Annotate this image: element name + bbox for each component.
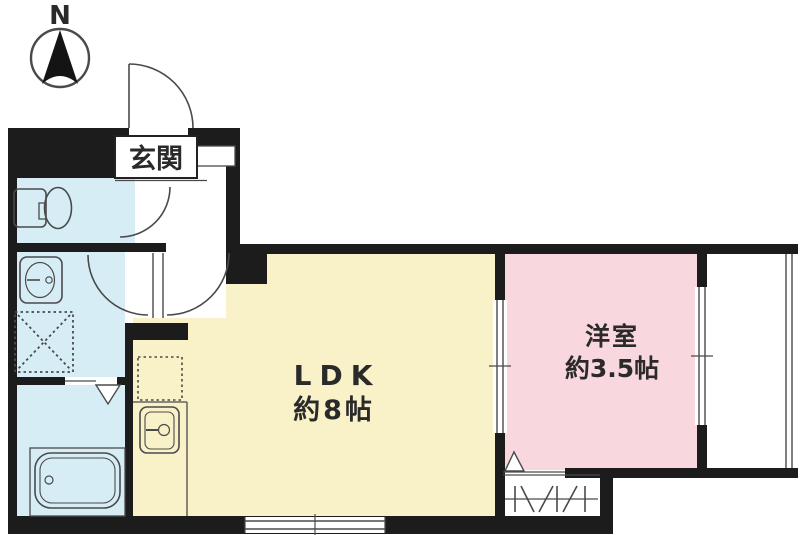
entrance-label: 玄関 (129, 143, 183, 175)
western-room-size-label: 約3.5帖 (565, 354, 659, 383)
entrance-door (129, 64, 193, 128)
hallway-floor (133, 253, 226, 318)
wall-top-main (226, 244, 798, 254)
wall-kitchen-left (125, 323, 133, 516)
north-needle-icon (42, 30, 78, 84)
compass (31, 29, 89, 87)
bathroom-floor (17, 385, 125, 516)
balcony-railing-icon (786, 254, 792, 468)
toilet-room-floor (17, 178, 135, 243)
wall-western-left-top (495, 244, 505, 302)
wall-mass-above-toilet (8, 148, 115, 178)
entrance-door-arc-icon (129, 64, 193, 128)
wall-balcony-bottom (697, 468, 798, 478)
ldk-label: LDK (294, 359, 381, 392)
wall-toilet-bottom (8, 243, 166, 252)
wall-bath-top-right (117, 377, 133, 385)
balcony-floor (707, 254, 786, 468)
floor-plan: N 玄関 LDK 約8帖 洋室 約3.5帖 (0, 0, 800, 535)
compass-north-label: N (49, 1, 71, 31)
wall-western-left-bottom (495, 433, 505, 525)
ldk-size-label: 約8帖 (293, 394, 375, 426)
wall-closet-right (600, 472, 613, 534)
shoe-cabinet (197, 146, 235, 166)
wall-western-right-top (697, 254, 707, 287)
western-room-label: 洋室 (585, 322, 639, 351)
wall-western-right-bottom (697, 425, 707, 470)
wall-bath-top-left (8, 377, 65, 385)
wall-kitchen-step (125, 323, 188, 340)
ldk-window (245, 514, 385, 535)
wall-top-left (8, 128, 129, 150)
washroom-floor (17, 252, 125, 377)
wall-western-bottom (565, 468, 707, 478)
